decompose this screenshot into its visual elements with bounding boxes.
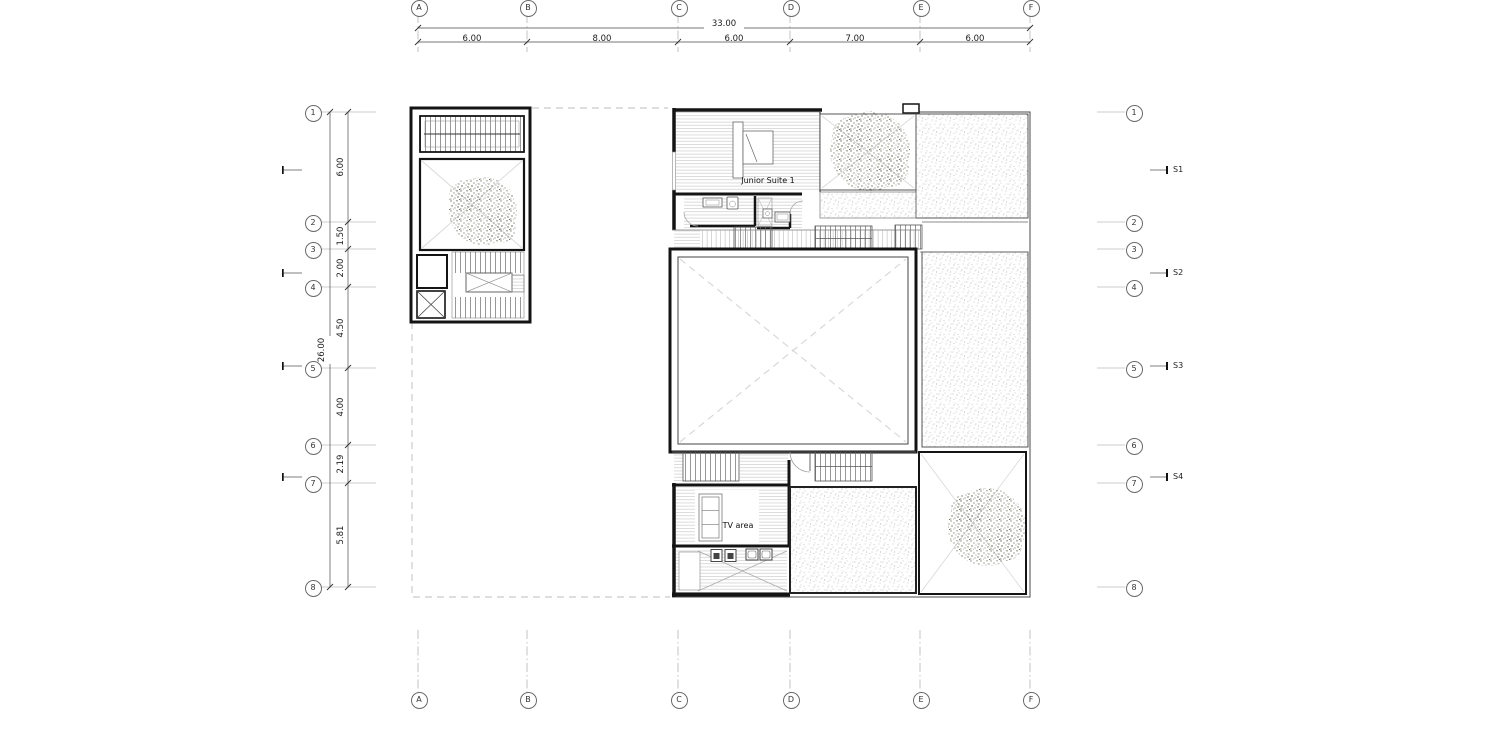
annex-service-cells: [417, 255, 447, 318]
chair-symbol: [763, 209, 772, 218]
dimension-segment: 4.00: [336, 394, 346, 420]
grid-bubble-row-right: 5: [1126, 361, 1143, 378]
gravel-strip: [820, 192, 916, 218]
central-void: [670, 249, 916, 452]
dimension-segment: 1.50: [336, 223, 346, 249]
counter: [679, 552, 700, 590]
grid-bubble-row-right: 4: [1126, 280, 1143, 297]
grid-bubble-row-left: 1: [305, 105, 322, 122]
plan-drawing: [0, 0, 1500, 752]
gravel-area-bottom-center: [790, 487, 916, 593]
section-label-s4: S4: [1173, 472, 1183, 481]
toilet-symbol: [727, 197, 738, 209]
annex-stair-bottom: [452, 252, 524, 318]
grid-bubble-row-right: 3: [1126, 242, 1143, 259]
sofa-symbol: [699, 494, 722, 541]
section-markers-left: [282, 166, 302, 481]
tree-symbol: [830, 111, 910, 191]
courtyard-bottom: [919, 452, 1026, 594]
grid-bubble-col-top: F: [1023, 0, 1040, 17]
grid-bubble-col-bottom: E: [913, 692, 930, 709]
section-markers-right: [1150, 166, 1168, 481]
stair-run: [683, 452, 739, 481]
grid-bubble-col-bottom: B: [520, 692, 537, 709]
annex-courtyard: [420, 159, 524, 250]
grid-bubble-col-bottom: A: [411, 692, 428, 709]
walkway-lower: [672, 452, 916, 483]
stair-run: [895, 225, 922, 249]
stair-run: [734, 227, 772, 249]
grid-bubble-row-right: 1: [1126, 105, 1143, 122]
floor-plan-canvas: A B C D E F A B C D E F 1 2 3 4 5 6 7 8 …: [0, 0, 1500, 752]
utility-room: [672, 549, 790, 595]
grid-bubble-col-top: B: [520, 0, 537, 17]
annex-stair-top: [420, 116, 524, 152]
annex-block: [411, 108, 530, 322]
dimension-segment: 8.00: [582, 34, 622, 44]
grid-bubble-col-top: C: [671, 0, 688, 17]
grid-bubble-col-top: A: [411, 0, 428, 17]
tree-symbol: [948, 488, 1026, 566]
grid-bubble-row-left: 6: [305, 438, 322, 455]
dimension-total-height: 26.00: [317, 335, 327, 365]
grid-bubble-row-right: 2: [1126, 215, 1143, 232]
grid-bubble-row-left: 8: [305, 580, 322, 597]
dimension-segment: 6.00: [714, 34, 754, 44]
grid-bubble-col-bottom: C: [671, 692, 688, 709]
grid-bubble-col-top: E: [913, 0, 930, 17]
dimension-segment: 7.00: [835, 34, 875, 44]
gravel-area-top-right: [916, 114, 1028, 218]
dimension-segment: 6.00: [336, 154, 346, 180]
grid-bubble-row-right: 6: [1126, 438, 1143, 455]
room-label-tv-area: TV area: [713, 521, 763, 530]
grid-bubble-row-right: 8: [1126, 580, 1143, 597]
door-arc: [790, 452, 810, 472]
dimension-total-width: 33.00: [704, 19, 744, 29]
room-label-junior-suite: Junior Suite 1: [728, 176, 808, 185]
dimension-segment: 4.50: [336, 315, 346, 341]
roof-chimney: [903, 104, 919, 113]
section-label-s2: S2: [1173, 268, 1183, 277]
dimension-segment: 6.00: [955, 34, 995, 44]
section-label-s3: S3: [1173, 361, 1183, 370]
dimension-segment: 2.19: [336, 451, 346, 477]
grid-bubble-row-left: 2: [305, 215, 322, 232]
grid-bubble-row-right: 7: [1126, 476, 1143, 493]
grid-bubble-row-left: 4: [305, 280, 322, 297]
tree-symbol: [449, 177, 517, 245]
sink-symbol: [703, 198, 722, 207]
dimension-segment: 6.00: [452, 34, 492, 44]
dimension-segment: 2.00: [336, 255, 346, 281]
dimension-lines-left: [327, 109, 351, 590]
dimension-segment: 5.81: [336, 522, 346, 548]
grid-bubble-col-bottom: F: [1023, 692, 1040, 709]
gravel-area-mid-right: [922, 252, 1028, 447]
grid-bubble-col-bottom: D: [783, 692, 800, 709]
courtyard-top: [820, 111, 916, 191]
grid-bubble-col-top: D: [783, 0, 800, 17]
grid-bubble-row-left: 3: [305, 242, 322, 259]
section-label-s1: S1: [1173, 165, 1183, 174]
grid-bubble-row-left: 7: [305, 476, 322, 493]
